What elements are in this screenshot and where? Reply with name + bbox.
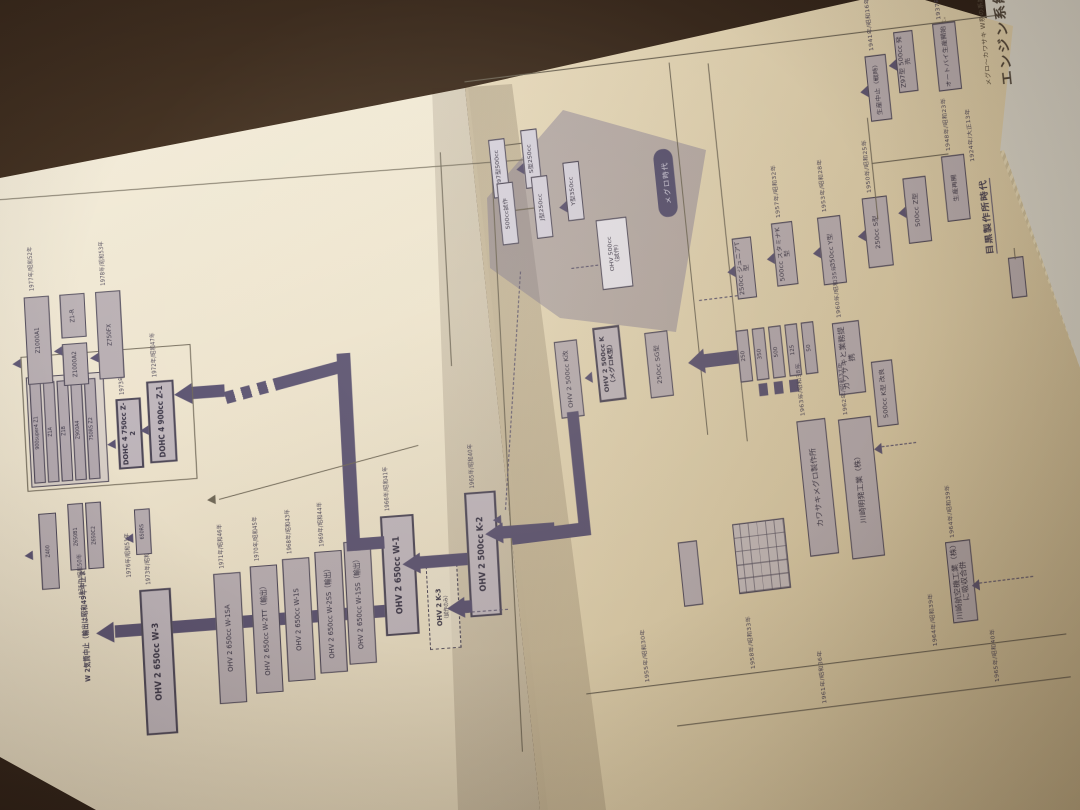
photo-scene: W 2気筒中止（輸出は昭和49年中止まで） OHV 2 650cc W-3 OH… xyxy=(0,0,1080,810)
photo-vignette xyxy=(0,0,1080,810)
